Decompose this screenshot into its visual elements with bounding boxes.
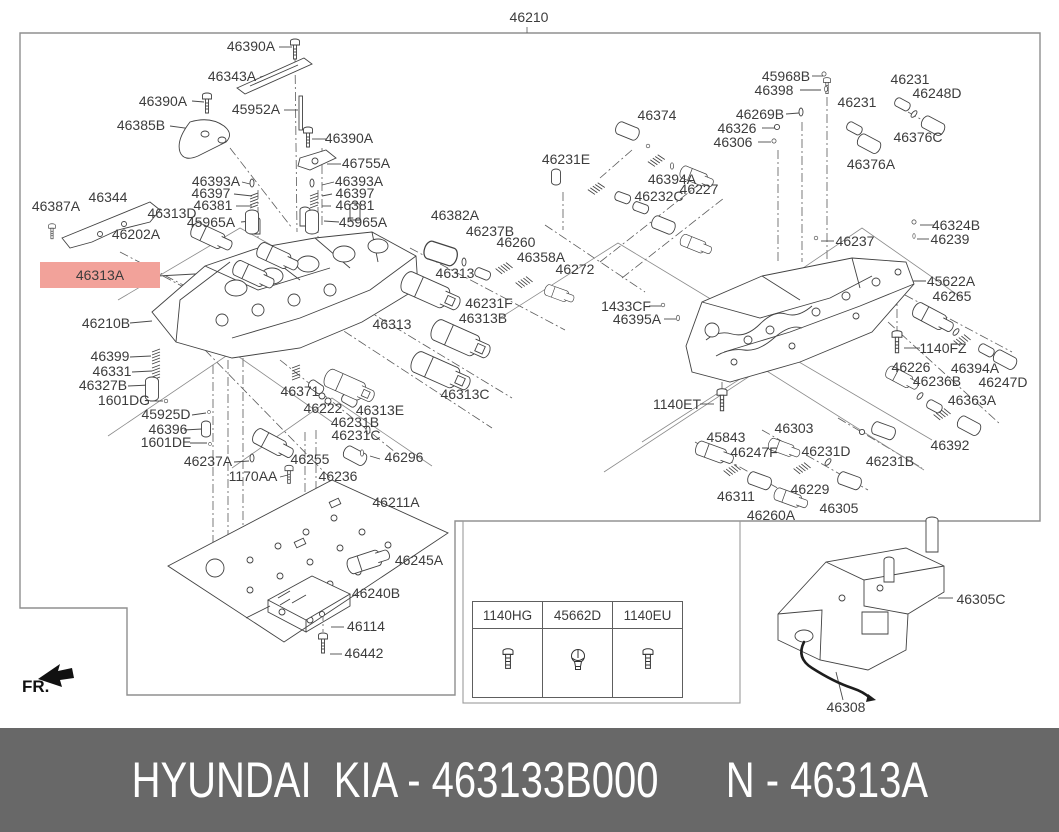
part-label-46313C: 46313C [440, 386, 489, 402]
upper-right-parts [614, 72, 947, 257]
part-label-46390A: 46390A [325, 130, 374, 146]
part-label-46202A: 46202A [112, 226, 161, 242]
part-label-46303: 46303 [775, 420, 814, 436]
part-label-46305C: 46305C [956, 591, 1005, 607]
part-label-46211A: 46211A [372, 494, 420, 510]
part-label-46237: 46237 [836, 233, 875, 249]
part-label-1601DE: 1601DE [141, 434, 192, 450]
bolt-icon [639, 647, 657, 677]
footer-banner: HYUNDAI KIA - 463133B000 N - 46313A [0, 728, 1059, 832]
part-label-46236: 46236 [319, 468, 358, 484]
part-label-46313B: 46313B [459, 310, 507, 326]
part-label-46363A: 46363A [948, 392, 997, 408]
part-label-46231F: 46231F [465, 295, 512, 311]
parts-diagram-page: FR. 4621046390A46343A46390A45952A46385B4… [0, 0, 1059, 832]
part-label-46313: 46313 [373, 316, 412, 332]
part-label-46381: 46381 [194, 197, 233, 213]
part-label-46245A: 46245A [395, 552, 444, 568]
part-label-46247D: 46247D [978, 374, 1027, 390]
bolt-icon [499, 647, 517, 677]
oil-temp-bracket [778, 517, 944, 702]
fasteners-icon-row [473, 629, 683, 698]
fastener-code: 1140EU [613, 602, 683, 629]
part-label-45843: 45843 [707, 429, 746, 445]
part-label-46231B: 46231B [866, 453, 914, 469]
part-label-46260: 46260 [497, 234, 536, 250]
part-label-46344: 46344 [89, 189, 128, 205]
part-label-46237A: 46237A [184, 453, 233, 469]
part-label-46210: 46210 [510, 9, 549, 25]
part-label-46222: 46222 [304, 400, 343, 416]
part-label-46327B: 46327B [79, 377, 127, 393]
part-label-46308: 46308 [827, 699, 866, 715]
part-label-46231E: 46231E [542, 151, 590, 167]
part-label-46392: 46392 [931, 437, 970, 453]
part-label-46239: 46239 [931, 231, 970, 247]
fastener-code: 45662D [543, 602, 613, 629]
part-label-46395A: 46395A [613, 311, 662, 327]
part-label-46114: 46114 [347, 618, 385, 634]
part-label-1170AA: 1170AA [229, 468, 278, 484]
part-label-46232C: 46232C [634, 188, 683, 204]
fastener-cell [543, 629, 613, 698]
part-label-46376A: 46376A [847, 156, 896, 172]
part-label-46313A: 46313A [76, 267, 125, 283]
valve-body-lower [686, 258, 914, 382]
fr-label: FR. [22, 677, 49, 696]
part-label-46755A: 46755A [342, 155, 391, 171]
fastener-cell [613, 629, 683, 698]
part-label-46387A: 46387A [32, 198, 81, 214]
part-label-46385B: 46385B [117, 117, 165, 133]
part-label-46265: 46265 [933, 288, 972, 304]
part-label-46381: 46381 [336, 197, 375, 213]
part-label-46236B: 46236B [913, 373, 961, 389]
part-label-46399: 46399 [91, 348, 130, 364]
part-label-46343A: 46343A [208, 68, 257, 84]
footer-reference-code: N - 46313A [725, 755, 927, 805]
part-label-46247F: 46247F [730, 444, 777, 460]
part-label-46374: 46374 [638, 107, 677, 123]
part-label-46296: 46296 [385, 449, 424, 465]
part-label-45925D: 45925D [141, 406, 190, 422]
part-label-46231D: 46231D [801, 443, 850, 459]
fasteners-header-row: 1140HG 45662D 1140EU [473, 602, 683, 629]
part-label-46311: 46311 [717, 488, 755, 504]
part-label-46255: 46255 [291, 451, 330, 467]
part-label-46313D: 46313D [147, 205, 196, 221]
part-label-46398: 46398 [755, 82, 794, 98]
part-label-46371: 46371 [281, 383, 320, 399]
fasteners-table: 1140HG 45662D 1140EU [472, 601, 683, 698]
part-label-46390A: 46390A [227, 38, 276, 54]
part-label-46227: 46227 [680, 181, 719, 197]
part-label-46305: 46305 [820, 500, 859, 516]
part-label-1140ET: 1140ET [653, 396, 701, 412]
part-label-46260A: 46260A [747, 507, 796, 523]
fastener-cell [473, 629, 543, 698]
front-direction: FR. [22, 664, 74, 696]
part-label-45622A: 45622A [927, 273, 976, 289]
fastener-code: 1140HG [473, 602, 543, 629]
part-label-46248D: 46248D [912, 85, 961, 101]
part-label-46390A: 46390A [139, 93, 188, 109]
part-label-46382A: 46382A [431, 207, 480, 223]
part-label-1140FZ: 1140FZ [919, 340, 967, 356]
part-label-46240B: 46240B [352, 585, 400, 601]
grommet-icon [567, 647, 589, 677]
part-label-46376C: 46376C [893, 129, 942, 145]
part-label-46210B: 46210B [82, 315, 130, 331]
part-label-46231: 46231 [838, 94, 877, 110]
part-label-46313E: 46313E [356, 402, 404, 418]
part-label-46229: 46229 [791, 481, 830, 497]
part-label-46272: 46272 [556, 261, 595, 277]
part-label-45952A: 45952A [232, 101, 281, 117]
part-label-46313: 46313 [436, 265, 475, 281]
part-label-46442: 46442 [345, 645, 384, 661]
part-label-45965A: 45965A [339, 214, 388, 230]
part-label-46306: 46306 [714, 134, 753, 150]
footer-part-number: HYUNDAI KIA - 463133B000 [131, 755, 658, 805]
